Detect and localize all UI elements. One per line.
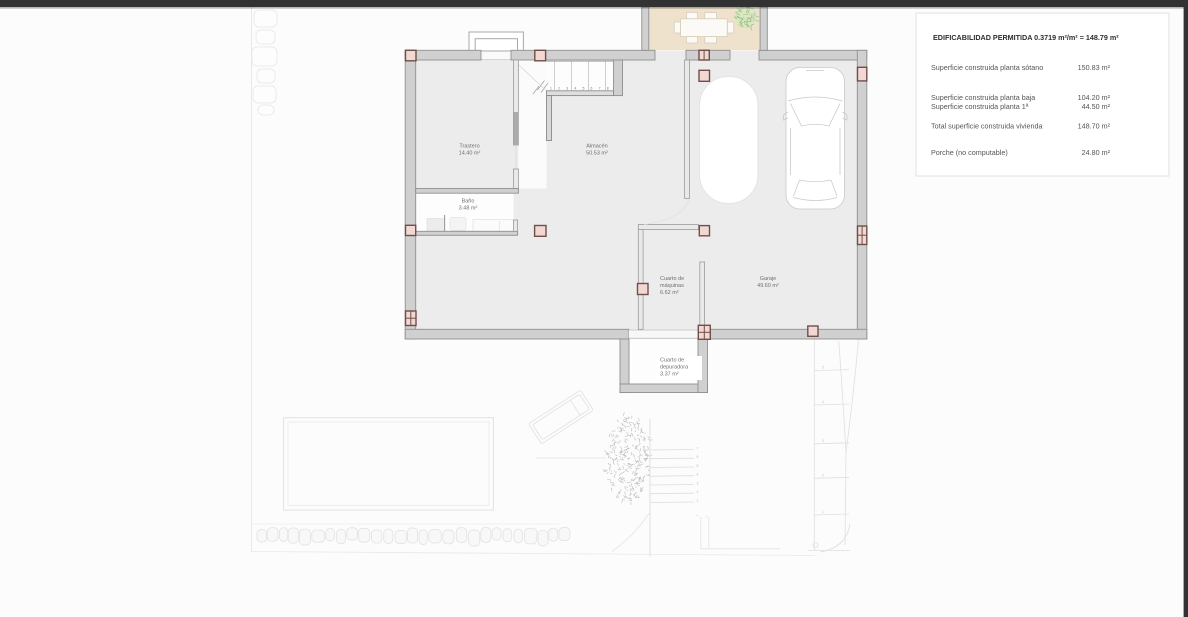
svg-text:2: 2 (697, 490, 699, 494)
svg-text:8: 8 (607, 87, 609, 91)
svg-text:7: 7 (697, 447, 699, 451)
svg-text:3.48 m²: 3.48 m² (459, 206, 478, 212)
svg-text:49.60 m²: 49.60 m² (757, 283, 779, 289)
svg-text:44.50 m²: 44.50 m² (1082, 102, 1111, 111)
svg-text:Superficie construida planta 1: Superficie construida planta 1ª (931, 102, 1029, 111)
svg-text:6.62 m²: 6.62 m² (660, 290, 679, 296)
svg-text:3: 3 (566, 87, 568, 91)
svg-text:EDIFICABILIDAD PERMITIDA 0.371: EDIFICABILIDAD PERMITIDA 0.3719 m²/m² = … (933, 33, 1119, 42)
svg-text:50.53 m²: 50.53 m² (586, 151, 608, 157)
svg-text:Almacén: Almacén (586, 144, 607, 150)
svg-text:Cuarto de: Cuarto de (660, 358, 684, 364)
svg-text:máquinas: máquinas (660, 283, 684, 289)
svg-text:Trastero: Trastero (459, 144, 479, 150)
svg-text:148.70 m²: 148.70 m² (1078, 122, 1111, 131)
svg-text:1: 1 (550, 87, 552, 91)
svg-text:4: 4 (697, 473, 699, 477)
svg-text:depuradora: depuradora (660, 365, 689, 371)
svg-text:Superficie construida planta s: Superficie construida planta sótano (931, 63, 1043, 72)
svg-text:24.80 m²: 24.80 m² (1082, 148, 1111, 157)
svg-text:1: 1 (822, 510, 824, 514)
svg-text:6: 6 (697, 455, 699, 459)
svg-text:2: 2 (822, 473, 824, 477)
svg-text:5: 5 (697, 464, 699, 468)
svg-text:4: 4 (574, 87, 576, 91)
svg-text:4: 4 (822, 400, 824, 404)
svg-text:6: 6 (591, 87, 593, 91)
svg-text:104.20 m²: 104.20 m² (1078, 93, 1111, 102)
svg-text:3.37 m²: 3.37 m² (660, 372, 679, 378)
svg-text:Porche (no computable): Porche (no computable) (931, 148, 1008, 157)
svg-text:150.83 m²: 150.83 m² (1078, 63, 1111, 72)
svg-text:Total superficie construida vi: Total superficie construida vivienda (931, 122, 1042, 131)
svg-text:2: 2 (558, 87, 560, 91)
svg-text:7: 7 (599, 87, 601, 91)
svg-text:Superficie construida planta b: Superficie construida planta baja (931, 93, 1035, 102)
svg-text:5: 5 (582, 87, 584, 91)
svg-text:Baño: Baño (462, 199, 475, 205)
svg-text:Garaje: Garaje (760, 276, 777, 282)
svg-text:3: 3 (697, 482, 699, 486)
svg-text:14.40 m²: 14.40 m² (459, 151, 481, 157)
svg-text:1: 1 (697, 499, 699, 503)
svg-text:5: 5 (822, 366, 824, 370)
svg-text:3: 3 (822, 439, 824, 443)
svg-text:Cuarto de: Cuarto de (660, 276, 684, 282)
